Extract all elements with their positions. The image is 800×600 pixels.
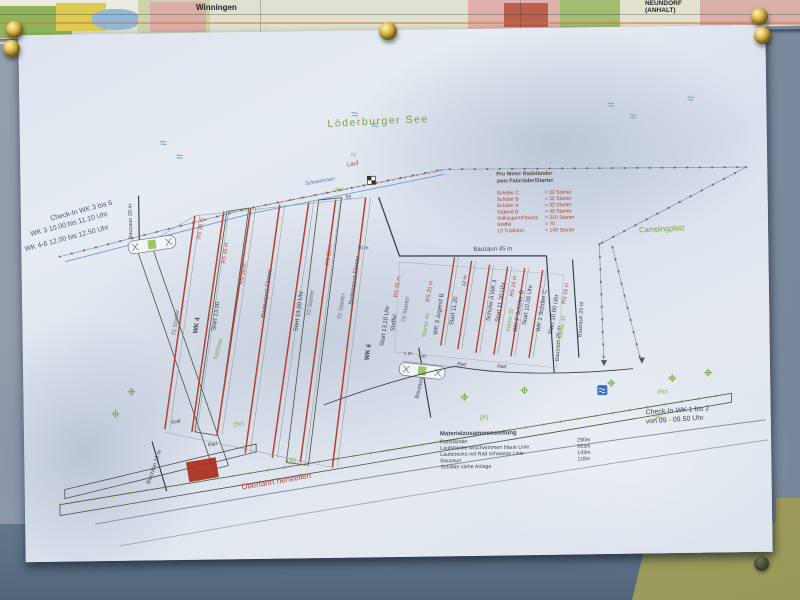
legend-row-value: 263m [577, 444, 591, 450]
discipline-label: Staffel [390, 314, 398, 332]
rack-length-label: RS 35 m [196, 217, 205, 239]
rack-length-label: RS 35 m [325, 243, 334, 265]
legend-row-value: = 70 [545, 221, 555, 227]
map-grid-line [0, 14, 800, 15]
arrow-tip-icon [639, 358, 645, 364]
material-legend-title: Materialzusammenstellung [440, 430, 517, 437]
bauzaun-label: Bauzaun 45 m [473, 246, 512, 253]
push-pin-icon [751, 8, 768, 25]
legend-row-value: = 140 Starter [545, 227, 575, 233]
wk6-label: WK 6 [364, 343, 373, 360]
wave-icon: ≈ [629, 109, 636, 124]
bauzaun-label: Bauzaun 20 m [577, 301, 585, 337]
so-label: (So) [233, 421, 244, 429]
rack-legend-title1: Pro Meter Radständer [496, 171, 553, 178]
arrow-tip-icon [601, 360, 607, 366]
dimension-label: 7 m [403, 351, 412, 358]
legend-row-value: = 210 Starter [545, 215, 575, 221]
wave-icon: ≈ [372, 117, 379, 132]
legend-row-label: Staffel [497, 222, 511, 228]
push-pin-icon [754, 556, 769, 571]
material-legend: Materialzusammenstellung Radständer 290m… [440, 429, 591, 470]
map-town-label-line2: (ANHALT) [645, 7, 682, 14]
starter-count-label: 70 Starter [306, 290, 316, 317]
crossing-marker-red-square [186, 457, 219, 482]
run-label: Lauf [346, 160, 359, 168]
campsite-boundary [598, 167, 749, 366]
rack-legend: Pro Meter Radständer zwei Fahrräder/Star… [496, 170, 575, 234]
legend-row-value: 290m [577, 437, 591, 443]
rack-length-label: RS 20 m [425, 280, 434, 302]
distance-50-label: 50 [346, 195, 352, 201]
campsite-label: Campingplatz [639, 223, 685, 234]
start-finish-flag-icon [367, 176, 375, 184]
site-plan-paper: Löderburger See ≈ ≈ ≈ ≈ ≈ ≈ ≈ Lauf Schwi… [18, 25, 772, 562]
rack-end-cap [399, 362, 446, 380]
starter-count-label: Starter 40 [422, 313, 432, 338]
rad-label: Rad [171, 418, 181, 426]
discipline-label: Breitensport-Fitness [348, 255, 361, 305]
wave-icon: ≈ [607, 97, 614, 112]
site-plan-drawing: Löderburger See ≈ ≈ ≈ ≈ ≈ ≈ ≈ Lauf Schwi… [18, 25, 772, 562]
course-marker-label: IV [351, 153, 357, 159]
wk4-label: WK 4 [192, 317, 201, 334]
so-label: (So) [334, 186, 345, 194]
wave-icon: ≈ [160, 135, 167, 150]
photo-of-pinned-site-plan: Winningen NEUNDORF (ANHALT) Löderburger … [0, 0, 800, 600]
push-pin-icon [6, 21, 23, 38]
starter-count-label: Starter 32 [558, 315, 568, 340]
surface-label: So/Gras [213, 338, 224, 361]
wk1-label: WK 1 Schüler C [536, 289, 549, 333]
wave-icon: ≈ [351, 106, 358, 121]
legend-row-label: Schilder siehe Anlage [440, 464, 491, 471]
map-town-label: Winningen [196, 3, 237, 12]
swim-sign-icon [597, 385, 607, 395]
lake-area: Löderburger See ≈ ≈ ≈ ≈ ≈ ≈ ≈ [159, 91, 695, 164]
map-patch [560, 0, 622, 30]
starter-count-label: 70 Starter [337, 293, 347, 320]
so-label: (So) [657, 389, 668, 395]
legend-row-label: Volkssport/Fitness [497, 215, 539, 222]
start-time-label: Start 13.00 [211, 301, 221, 332]
swim-run-blue-line [64, 174, 445, 261]
legend-row-label: Laufstrecke mit Rad schwarze Linie [440, 451, 524, 458]
legend-row-value: 118m [577, 456, 591, 462]
map-lake-patch [92, 9, 140, 30]
push-pin-icon [3, 40, 20, 57]
wave-icon: ≈ [176, 149, 183, 164]
starter-count-label: 70 Starter [401, 296, 411, 323]
start-time-label: Start 13.10 Uhr [380, 305, 392, 346]
push-pin-icon [754, 27, 771, 44]
wave-icon: ≈ [687, 91, 694, 106]
rad-label: Rad [457, 361, 467, 368]
path-a-label: (A) [287, 457, 297, 465]
bauzaun-label: Bauzaun 20 m [128, 203, 135, 239]
legend-row-value: 143m [577, 450, 591, 456]
rad-label: Rad [497, 364, 507, 371]
map-road-line [0, 22, 800, 24]
rack-legend-title2: zwei Fahrräder/Starter [496, 178, 554, 185]
dimension-label: 7 m [417, 353, 426, 360]
rad-label: Rad [207, 441, 217, 449]
rack-length-label: RS 16 m [509, 275, 518, 297]
push-pin-icon [379, 22, 397, 40]
start-time-label: Start 11.20 [449, 296, 460, 326]
map-town-label-line1: NEUNDORF [645, 0, 682, 7]
map-town-label: NEUNDORF (ANHALT) [645, 0, 682, 14]
path-a-label: (A) [479, 414, 489, 422]
discipline-label: Breitensport-Fitness [261, 269, 274, 319]
legend-row-label: 13 Triathlon [497, 228, 524, 234]
swim-label: Schwimmen [305, 176, 336, 187]
